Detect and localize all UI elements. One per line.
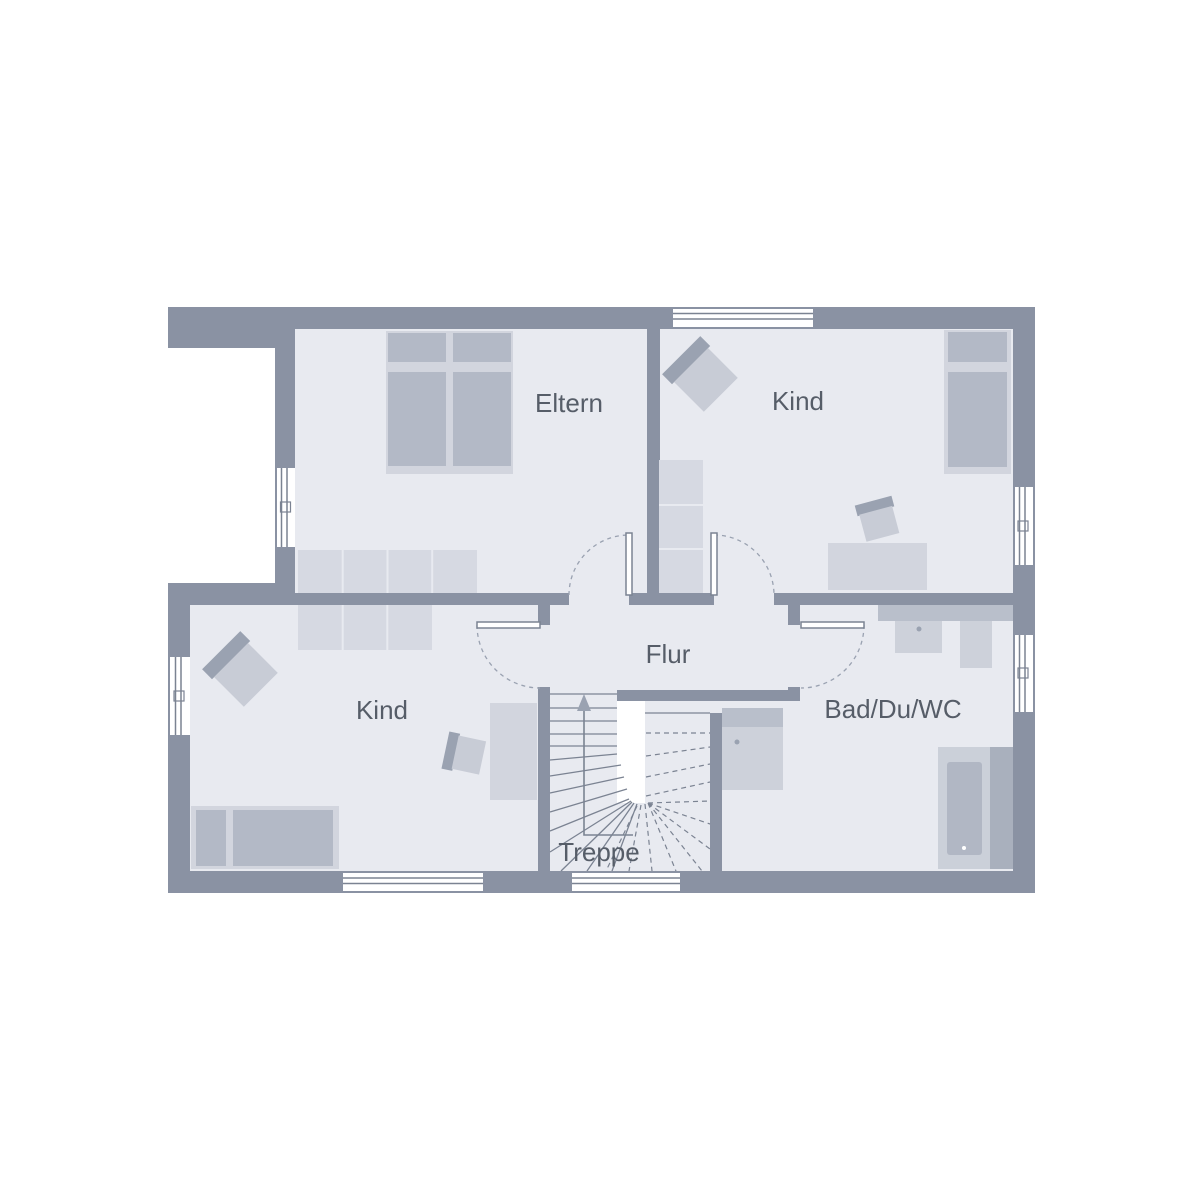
wall-right — [1013, 307, 1035, 893]
single-bed — [944, 330, 1011, 474]
wall-interior-a — [275, 593, 569, 605]
room-label-kind-bottom: Kind — [356, 695, 408, 725]
room-label-flur: Flur — [646, 639, 691, 669]
room-label-kind-top: Kind — [772, 386, 824, 416]
wardrobe-kind — [298, 605, 432, 650]
desk — [828, 543, 927, 590]
shower — [722, 708, 783, 790]
window-top — [673, 309, 813, 327]
wall-top-left-corner — [168, 329, 275, 348]
window-kind-bottom-left — [170, 657, 190, 735]
shelf — [659, 460, 703, 593]
window-bottom-kind — [343, 873, 483, 891]
wall-flur-bottom — [617, 690, 800, 701]
wc-fixture — [960, 621, 992, 668]
wall-top — [168, 307, 1035, 329]
floor-plan-page: Eltern Kind Kind Flur Bad/Du/WC Treppe — [0, 0, 1200, 1200]
wardrobe-eltern — [298, 550, 477, 593]
washbasin — [895, 621, 942, 653]
wall-stairs-right — [710, 713, 722, 871]
stair-void — [617, 701, 645, 803]
wall-mid-vertical — [647, 329, 660, 593]
window-bottom-stairs — [572, 873, 680, 891]
window-eltern-left — [277, 468, 295, 547]
wall-interior-b — [629, 593, 714, 605]
desk — [490, 703, 537, 800]
window-kind-top-right — [1015, 487, 1033, 565]
single-bed — [191, 806, 339, 869]
wall-interior-c — [774, 593, 1013, 605]
wall-stairs-left — [538, 687, 550, 871]
room-label-eltern: Eltern — [535, 388, 603, 418]
window-bad-right — [1015, 635, 1033, 712]
room-label-treppe: Treppe — [558, 837, 639, 867]
bathtub — [938, 747, 1013, 869]
vanity-counter — [878, 605, 1013, 621]
floor-plan-drawing: Eltern Kind Kind Flur Bad/Du/WC Treppe — [0, 0, 1200, 1200]
double-bed — [386, 331, 513, 474]
wall-eltern-left — [275, 329, 295, 593]
wall-left-lower — [168, 583, 190, 893]
wall-stub-bad-top — [788, 605, 800, 625]
room-label-bad: Bad/Du/WC — [824, 694, 961, 724]
